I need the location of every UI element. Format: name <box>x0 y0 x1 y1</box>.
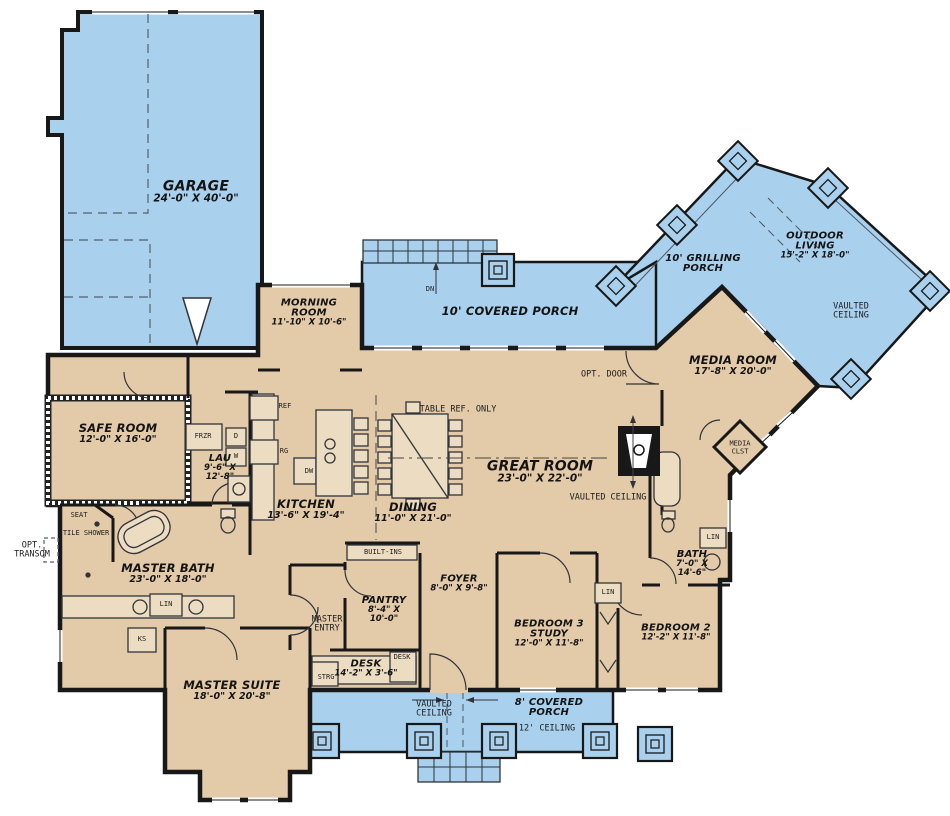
media-clst-label: MEDIA CLST <box>722 440 758 455</box>
master-bath-label: MASTER BATH23'-0" X 18'-0" <box>98 563 238 585</box>
opt-transom-label: OPT. TRANSOM <box>8 542 56 561</box>
dryer-label: D <box>234 433 238 441</box>
grilling-porch-label: 10' GRILLING PORCH <box>659 254 747 274</box>
master-suite-label: MASTER SUITE18'-0" X 20'-8" <box>157 680 307 702</box>
seat-label: SEAT <box>71 512 88 520</box>
master-entry-label: MASTER ENTRY <box>300 616 354 635</box>
porch-vaulted-label: VAULTED CEILING <box>408 701 460 720</box>
fireplace <box>618 426 660 476</box>
washer-label: W <box>234 453 238 461</box>
bedroom2-label: BEDROOM 212'-2" X 11'-8" <box>630 623 722 642</box>
lin-master-label: LIN <box>160 601 173 609</box>
great-room-label: GREAT ROOM23'-0" X 22'-0" <box>465 459 615 484</box>
ks-label: KS <box>138 636 146 644</box>
outdoor-living-label: OUTDOOR LIVING15'-2" X 18'-0" <box>769 231 861 260</box>
frzr-label: FRZR <box>195 433 212 441</box>
garage-label: GARAGE24'-0" X 40'-0" <box>153 179 238 204</box>
strg-label: STRG <box>318 674 335 682</box>
floor-plan: GARAGE24'-0" X 40'-0" MORNING ROOM11'-10… <box>0 0 950 816</box>
dn-label: DN <box>426 286 434 294</box>
lin-bedrooms-label: LIN <box>602 589 615 597</box>
tile-shower-label: TILE SHOWER <box>63 530 109 538</box>
ceiling12-label: 12' CEILING <box>519 724 575 733</box>
outdoor-vaulted-label: VAULTED CEILING <box>825 303 877 322</box>
covered-porch-bottom-area <box>305 690 672 782</box>
built-ins-label: BUILT-INS <box>364 549 402 557</box>
bedroom3-label: BEDROOM 3 STUDY12'-0" X 11'-8" <box>510 619 588 648</box>
porch8-label: 8' COVERED PORCH <box>513 698 585 718</box>
bath2-label: BATH7'-0" X 14'-6" <box>668 550 716 578</box>
morning-room-label: MORNING ROOM11'-10" X 10'-6" <box>266 298 352 327</box>
safe-room-label: SAFE ROOM12'-0" X 16'-0" <box>63 423 173 445</box>
dining-label: DINING11'-0" X 21'-0" <box>370 502 456 524</box>
range-label: RG <box>280 448 288 456</box>
lin-bath-label: LIN <box>707 534 720 542</box>
covered-porch-label: 10' COVERED PORCH <box>442 306 579 318</box>
table-ref-label: TABLE REF. ONLY <box>420 405 497 414</box>
media-room-label: MEDIA ROOM17'-8" X 20'-0" <box>668 355 798 377</box>
great-room-vaulted-label: VAULTED CEILING <box>570 493 647 502</box>
kitchen-label: KITCHEN13'-6" X 19'-4" <box>246 499 366 521</box>
ref-label: REF <box>279 403 292 411</box>
dw-label: DW <box>305 468 313 476</box>
foyer-label: FOYER8'-0" X 9'-8" <box>419 574 499 593</box>
desk-cab-label: DESK <box>394 654 411 662</box>
pantry-label: PANTRY8'-4" X 10'-0" <box>358 596 410 624</box>
laundry-label: LAU9'-6" X 12'-8" <box>194 454 246 482</box>
opt-door-label: OPT. DOOR <box>581 370 627 379</box>
